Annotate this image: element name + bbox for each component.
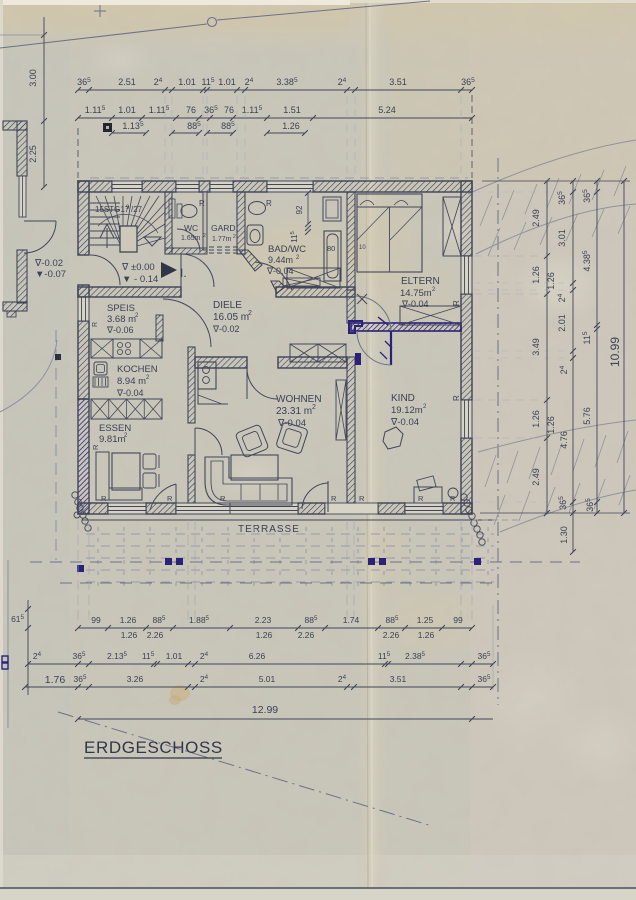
svg-text:DIELE: DIELE — [213, 300, 242, 311]
svg-text:1.26: 1.26 — [531, 410, 541, 428]
svg-text:1.26: 1.26 — [256, 630, 273, 640]
svg-text:4.76: 4.76 — [559, 431, 569, 449]
svg-text:1.01: 1.01 — [118, 105, 136, 115]
svg-text:/27: /27 — [131, 205, 143, 214]
svg-text:10.99: 10.99 — [608, 337, 622, 367]
svg-text:1.30: 1.30 — [559, 526, 569, 544]
svg-text:2.25: 2.25 — [28, 145, 38, 163]
svg-text:ERDGESCHOSS: ERDGESCHOSS — [84, 738, 223, 757]
svg-text:2: 2 — [312, 404, 316, 411]
svg-text:R: R — [266, 199, 272, 208]
svg-text:1.26: 1.26 — [418, 630, 435, 640]
svg-text:19.12m: 19.12m — [391, 405, 423, 416]
svg-text:2: 2 — [233, 234, 236, 240]
svg-text:3.51: 3.51 — [390, 674, 407, 684]
svg-text:6.26: 6.26 — [249, 651, 266, 661]
svg-text:9.81m: 9.81m — [99, 434, 125, 445]
svg-text:1.76: 1.76 — [45, 674, 66, 686]
svg-text:3.01: 3.01 — [557, 229, 567, 247]
svg-text:R: R — [101, 494, 107, 503]
svg-text:2.26: 2.26 — [147, 630, 164, 640]
svg-text:R: R — [91, 444, 100, 450]
svg-text:92: 92 — [295, 205, 304, 214]
svg-text:2.49: 2.49 — [531, 468, 541, 486]
svg-text:2.49: 2.49 — [531, 209, 541, 227]
svg-text:KOCHEN: KOCHEN — [117, 364, 158, 375]
svg-text:R: R — [167, 494, 173, 503]
svg-text:5.24: 5.24 — [378, 105, 396, 115]
svg-text:76: 76 — [224, 105, 234, 115]
svg-text:5.01: 5.01 — [259, 674, 276, 684]
svg-text:R: R — [450, 494, 456, 503]
svg-text:R: R — [452, 300, 461, 306]
svg-text:80: 80 — [327, 244, 335, 253]
svg-text:R: R — [92, 322, 99, 327]
svg-text:1.65m: 1.65m — [181, 235, 201, 242]
svg-text:R: R — [418, 494, 424, 503]
svg-text:∇ ±0.00: ∇ ±0.00 — [121, 262, 155, 273]
svg-text:76: 76 — [186, 105, 196, 115]
svg-text:1.26: 1.26 — [546, 416, 556, 434]
svg-text:23.31 m: 23.31 m — [276, 406, 312, 417]
svg-text:1.26: 1.26 — [531, 266, 541, 284]
svg-text:∇-0.06: ∇-0.06 — [106, 325, 134, 335]
svg-text:8.94 m: 8.94 m — [117, 376, 146, 387]
svg-text:2.01: 2.01 — [557, 314, 567, 332]
svg-text:5.76: 5.76 — [582, 407, 592, 425]
svg-text:R: R — [452, 395, 461, 401]
svg-text:R: R — [331, 494, 337, 503]
svg-text:1.01: 1.01 — [178, 77, 196, 87]
svg-text:1.26: 1.26 — [121, 630, 138, 640]
svg-text:2: 2 — [203, 233, 206, 239]
svg-text:R: R — [199, 199, 205, 208]
svg-text:SPEIS: SPEIS — [107, 303, 135, 314]
svg-text:2.26: 2.26 — [298, 630, 315, 640]
svg-text:2: 2 — [248, 310, 252, 317]
svg-text:GARD.: GARD. — [211, 223, 238, 233]
svg-text:∇-0.04: ∇-0.04 — [401, 299, 429, 309]
svg-text:KIND: KIND — [391, 393, 415, 404]
svg-text:99: 99 — [91, 615, 101, 625]
svg-text:1.77m: 1.77m — [212, 236, 232, 243]
svg-text:BAD/WC: BAD/WC — [268, 244, 306, 255]
svg-text:1.26: 1.26 — [120, 615, 137, 625]
svg-text:3.26: 3.26 — [127, 674, 144, 684]
svg-text:14.75m: 14.75m — [400, 288, 432, 299]
svg-text:16.05 m: 16.05 m — [213, 312, 249, 323]
svg-text:1.01: 1.01 — [218, 77, 236, 87]
svg-text:3.49: 3.49 — [531, 338, 541, 356]
svg-text:WC: WC — [184, 223, 198, 233]
svg-text:1.26: 1.26 — [546, 272, 556, 290]
svg-text:R: R — [359, 494, 365, 503]
svg-text:3.51: 3.51 — [389, 77, 407, 87]
svg-text:1.26: 1.26 — [282, 121, 300, 131]
svg-text:2.51: 2.51 — [118, 77, 136, 87]
svg-text:▼-0.07: ▼-0.07 — [35, 269, 66, 280]
svg-text:R: R — [220, 494, 226, 503]
svg-text:15STG17: 15STG17 — [95, 205, 130, 214]
svg-text:2.26: 2.26 — [383, 630, 400, 640]
svg-text:1.51: 1.51 — [283, 105, 301, 115]
svg-text:∇-0.04: ∇-0.04 — [390, 417, 419, 428]
svg-text:I.: I. — [180, 266, 187, 280]
svg-text:3.00: 3.00 — [28, 69, 38, 87]
svg-text:2.23: 2.23 — [255, 615, 272, 625]
svg-text:ELTERN: ELTERN — [401, 276, 440, 287]
svg-text:1.01: 1.01 — [166, 651, 183, 661]
svg-text:▼ - 0.14: ▼ - 0.14 — [122, 274, 158, 285]
svg-text:9.44m: 9.44m — [268, 255, 293, 265]
svg-text:∇-0.02: ∇-0.02 — [212, 324, 240, 334]
svg-text:1.74: 1.74 — [343, 615, 360, 625]
svg-text:TERRASSE: TERRASSE — [238, 524, 300, 535]
svg-text:∇-0.04: ∇-0.04 — [116, 388, 144, 398]
svg-text:1.25: 1.25 — [417, 615, 434, 625]
svg-text:3.68 m: 3.68 m — [107, 314, 136, 325]
svg-text:10: 10 — [359, 245, 366, 251]
svg-text:∇-0.02: ∇-0.02 — [34, 258, 63, 269]
svg-text:99: 99 — [453, 615, 463, 625]
svg-text:12.99: 12.99 — [252, 704, 278, 716]
